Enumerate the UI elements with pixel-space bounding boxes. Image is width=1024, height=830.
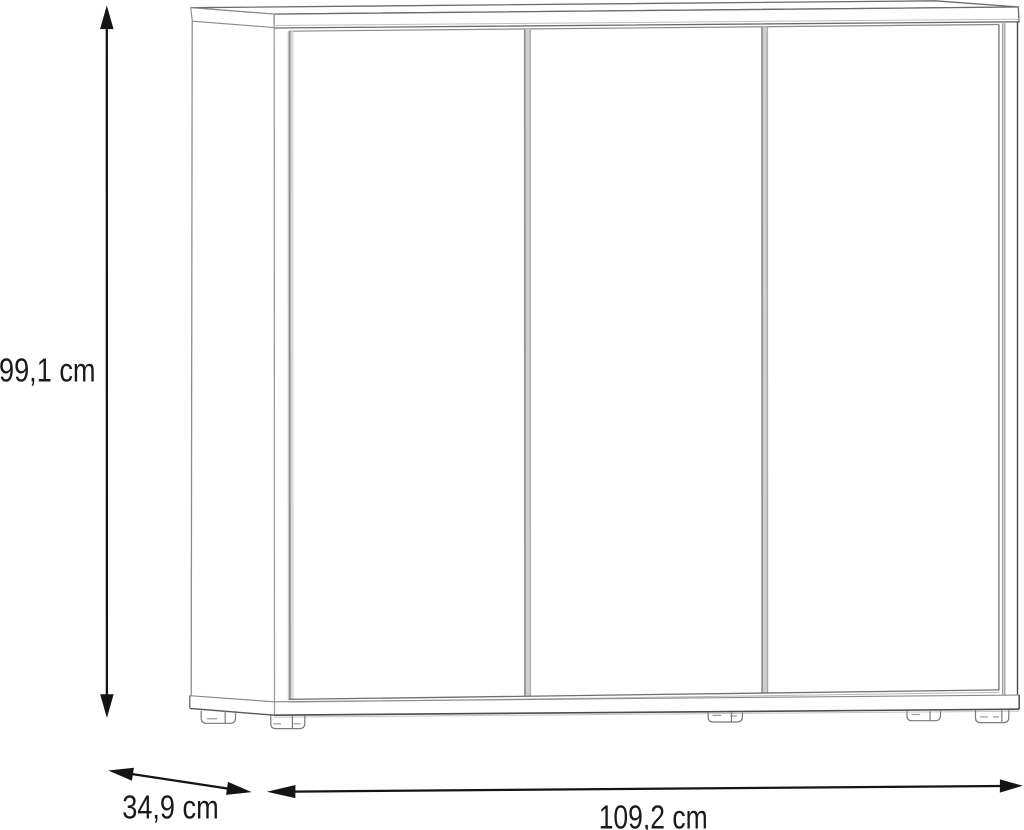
svg-text:34,9 cm: 34,9 cm [122,789,219,826]
svg-text:99,1 cm: 99,1 cm [0,352,96,389]
svg-text:109,2 cm: 109,2 cm [599,799,708,830]
